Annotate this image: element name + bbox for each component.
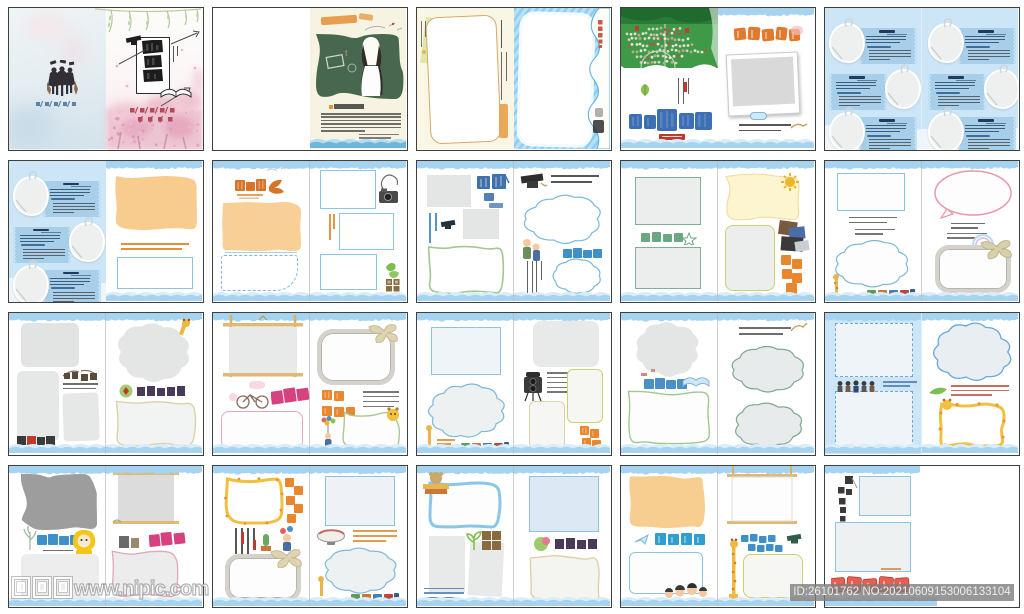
svg-text:t: t: [345, 48, 348, 58]
